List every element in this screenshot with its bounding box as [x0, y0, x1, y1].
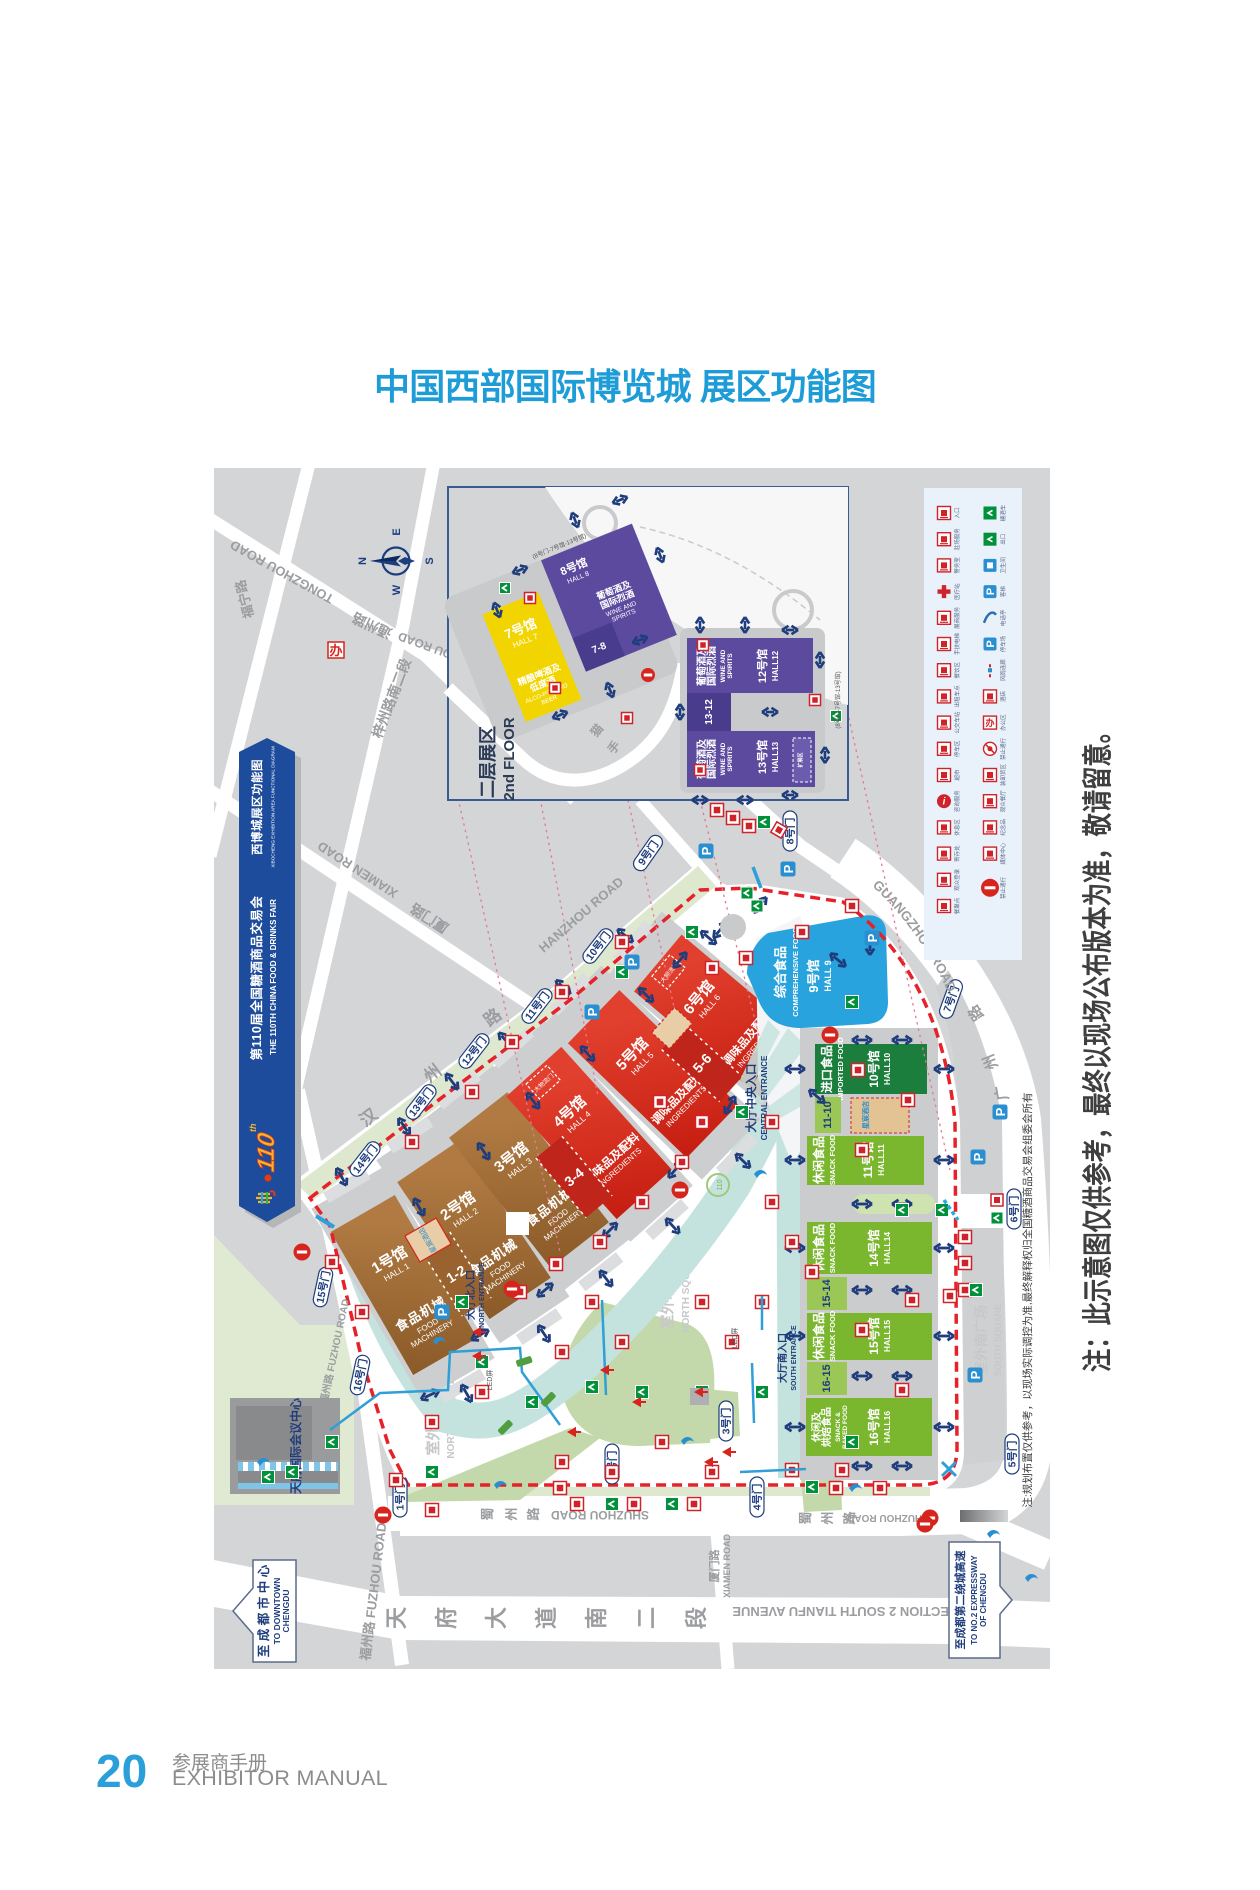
svg-text:110: 110: [717, 1179, 724, 1190]
svg-text:禁止通行: 禁止通行: [999, 737, 1007, 760]
svg-text:烘焙食品: 烘焙食品: [820, 1407, 833, 1447]
svg-text:SNACK FOOD: SNACK FOOD: [828, 1310, 837, 1361]
svg-text:15-14: 15-14: [821, 1279, 833, 1308]
svg-text:HALL 9: HALL 9: [823, 960, 833, 991]
svg-text:展商服务: 展商服务: [953, 606, 961, 629]
svg-text:SPIRITS: SPIRITS: [727, 746, 734, 772]
svg-text:餐饮区: 餐饮区: [953, 661, 961, 678]
svg-text:公交车站: 公交车站: [953, 711, 961, 734]
svg-text:HALL14: HALL14: [882, 1232, 892, 1264]
svg-text:SNACK FOOD: SNACK FOOD: [828, 1222, 837, 1273]
svg-text:州: 州: [820, 1511, 835, 1525]
svg-text:HALL10: HALL10: [882, 1053, 892, 1085]
svg-text:休闲食品: 休闲食品: [811, 1312, 826, 1361]
svg-text:(8号门-7号馆-13号馆): (8号门-7号馆-13号馆): [834, 671, 842, 728]
svg-text:TO NO.2 EXPRESSWAY: TO NO.2 EXPRESSWAY: [970, 1555, 979, 1645]
svg-text:1号门: 1号门: [394, 1484, 407, 1511]
svg-text:路: 路: [526, 1507, 541, 1521]
svg-text:THE 110TH CHINA FOOD & DRINKS: THE 110TH CHINA FOOD & DRINKS FAIR: [269, 899, 278, 1055]
svg-text:扩展区: 扩展区: [797, 752, 804, 767]
svg-text:OF CHENGDU: OF CHENGDU: [979, 1573, 988, 1627]
svg-text:大厅南入口: 大厅南入口: [776, 1333, 789, 1383]
svg-text:P: P: [968, 1370, 983, 1379]
svg-text:E: E: [391, 528, 403, 535]
svg-text:大厅中央入口: 大厅中央入口: [744, 1064, 758, 1133]
svg-text:风雨连廊: 风雨连廊: [999, 659, 1007, 682]
svg-text:电话亭: 电话亭: [999, 609, 1007, 626]
svg-text:休息区: 休息区: [953, 819, 961, 836]
svg-text:4号门: 4号门: [751, 1484, 764, 1511]
svg-text:P: P: [865, 933, 880, 942]
svg-text:星宸酒店: 星宸酒店: [861, 1101, 870, 1129]
svg-text:段: 段: [684, 1607, 709, 1629]
svg-text:咨询服务: 咨询服务: [953, 790, 961, 813]
svg-text:IMPORTED FOOD: IMPORTED FOOD: [836, 1037, 845, 1101]
svg-text:至成都第二绕城高速: 至成都第二绕城高速: [953, 1551, 967, 1650]
svg-text:二层展区: 二层展区: [478, 726, 498, 798]
svg-text:SECTION 2 SOUTH TIANFU AVENUE: SECTION 2 SOUTH TIANFU AVENUE: [732, 1604, 958, 1619]
svg-text:COMPREHENSIVE FOOD: COMPREHENSIVE FOOD: [791, 927, 800, 1017]
svg-text:th: th: [248, 1123, 258, 1132]
svg-text:2nd FLOOR: 2nd FLOOR: [501, 717, 518, 800]
svg-text:大: 大: [484, 1607, 509, 1629]
svg-text:SNACK &: SNACK &: [835, 1412, 842, 1442]
svg-text:注:规划布置仅供参考，以现场实际调控为准,最终解释权归全国糖: 注:规划布置仅供参考，以现场实际调控为准,最终解释权归全国糖酒商品交易会组委会所…: [1021, 1092, 1034, 1507]
svg-text:广: 广: [992, 1084, 1012, 1102]
svg-text:入口: 入口: [954, 507, 961, 518]
svg-text:客梯: 客梯: [999, 586, 1007, 598]
svg-text:糖酒车: 糖酒车: [999, 504, 1007, 521]
svg-text:CHENGDU: CHENGDU: [281, 1590, 291, 1633]
svg-text:P: P: [985, 640, 997, 647]
svg-text:观众餐厅: 观众餐厅: [999, 790, 1007, 813]
svg-text:N: N: [357, 557, 369, 565]
svg-text:11-10: 11-10: [822, 1101, 834, 1129]
svg-text:3号门: 3号门: [720, 1408, 733, 1435]
svg-text:寄存处: 寄存处: [953, 845, 961, 862]
svg-text:驻场服务: 驻场服务: [953, 528, 961, 551]
svg-text:14号馆: 14号馆: [866, 1229, 881, 1266]
svg-text:SNACK FOOD: SNACK FOOD: [828, 1134, 837, 1185]
svg-text:LED屏: LED屏: [731, 1328, 739, 1349]
svg-text:蜀: 蜀: [480, 1507, 495, 1520]
svg-text:出口: 出口: [999, 534, 1007, 545]
svg-text:办公区: 办公区: [999, 714, 1007, 731]
svg-text:出租车点: 出租车点: [953, 685, 961, 708]
svg-text:州: 州: [504, 1507, 519, 1521]
svg-text:纪念品: 纪念品: [999, 819, 1007, 836]
svg-text:W: W: [391, 584, 403, 595]
svg-text:P: P: [585, 1007, 600, 1016]
svg-text:南: 南: [584, 1607, 609, 1629]
svg-text:NORTH ENTRANCE: NORTH ENTRANCE: [479, 1262, 486, 1328]
svg-text:超市: 超市: [953, 769, 961, 781]
svg-text:道: 道: [534, 1607, 559, 1629]
svg-text:16-15: 16-15: [821, 1364, 833, 1392]
svg-text:S: S: [424, 557, 436, 564]
svg-text:厦门路: 厦门路: [707, 1549, 721, 1583]
svg-text:5号门: 5号门: [1006, 1441, 1019, 1468]
svg-text:第110届全国糖酒商品交易会: 第110届全国糖酒商品交易会: [249, 896, 264, 1061]
svg-text:至 成 都 市 中 心: 至 成 都 市 中 心: [256, 1564, 271, 1657]
svg-text:SOUTH SQUARE: SOUTH SQUARE: [993, 1304, 1003, 1377]
svg-text:进口食品: 进口食品: [819, 1045, 834, 1093]
svg-text:110: 110: [253, 1130, 280, 1174]
svg-text:天府国际会议中心: 天府国际会议中心: [288, 1398, 303, 1494]
svg-text:停车区: 停车区: [953, 740, 961, 757]
svg-text:13-12: 13-12: [704, 699, 715, 725]
svg-text:医疗站: 医疗站: [953, 583, 961, 600]
svg-text:9号馆: 9号馆: [806, 959, 821, 992]
svg-text:SHUZHOU ROAD: SHUZHOU ROAD: [847, 1512, 929, 1523]
svg-text:P: P: [699, 846, 714, 855]
svg-text:休闲食品: 休闲食品: [811, 1136, 826, 1185]
svg-text:P: P: [985, 588, 997, 595]
svg-text:P: P: [993, 1107, 1008, 1116]
svg-text:国际烈酒: 国际烈酒: [705, 739, 718, 779]
svg-text:HALL13: HALL13: [771, 741, 780, 772]
svg-text:手扶电梯: 手扶电梯: [953, 633, 961, 656]
svg-text:WINE AND: WINE AND: [720, 742, 727, 775]
svg-text:XIAMEN ROAD: XIAMEN ROAD: [722, 1534, 732, 1599]
svg-text:XIBOCHENG EXHIBITION AREA FUNC: XIBOCHENG EXHIBITION AREA FUNCTIONAL DIA…: [271, 746, 276, 868]
svg-text:卫生间: 卫生间: [999, 557, 1007, 574]
svg-text:10号馆: 10号馆: [866, 1050, 881, 1087]
svg-text:观众登录: 观众登录: [953, 868, 961, 891]
svg-text:HALL16: HALL16: [882, 1411, 892, 1443]
svg-text:警务室: 警务室: [953, 557, 961, 574]
svg-text:P: P: [625, 957, 640, 966]
svg-text:餐聚点: 餐聚点: [953, 897, 961, 914]
svg-text:装卸货区: 装卸货区: [999, 764, 1007, 787]
svg-text:国际烈酒: 国际烈酒: [705, 646, 718, 686]
svg-text:蜀: 蜀: [798, 1511, 813, 1524]
svg-text:办: 办: [985, 717, 994, 728]
svg-text:天: 天: [384, 1606, 409, 1629]
svg-text:HALL15: HALL15: [882, 1320, 892, 1352]
svg-text:停车场: 停车场: [999, 635, 1007, 652]
svg-text:SPIRITS: SPIRITS: [727, 653, 734, 679]
svg-text:HALL11: HALL11: [876, 1144, 886, 1176]
svg-text:综合食品: 综合食品: [773, 946, 788, 998]
svg-text:6号门: 6号门: [1008, 1196, 1021, 1223]
svg-text:LED屏: LED屏: [486, 1370, 494, 1391]
svg-text:16号馆: 16号馆: [866, 1408, 881, 1445]
svg-text:P: P: [435, 1307, 450, 1316]
svg-text:注：此示意图仅供参考，最终以现场公布版本为准，敬请留意。: 注：此示意图仅供参考，最终以现场公布版本为准，敬请留意。: [1081, 720, 1115, 1372]
svg-text:13号馆: 13号馆: [755, 740, 769, 774]
svg-text:禁止通行: 禁止通行: [999, 876, 1007, 899]
svg-text:P: P: [781, 864, 796, 873]
svg-text:媒体中心: 媒体中心: [999, 842, 1007, 865]
svg-text:i: i: [943, 797, 946, 808]
svg-text:P: P: [971, 1152, 986, 1161]
svg-text:酒店: 酒店: [999, 690, 1007, 702]
svg-text:府: 府: [434, 1607, 459, 1629]
svg-text:二: 二: [634, 1607, 659, 1629]
svg-text:西博城展区功能图: 西博城展区功能图: [250, 759, 264, 855]
svg-text:办: 办: [329, 643, 342, 658]
svg-text:WINE AND: WINE AND: [720, 649, 727, 682]
svg-text:12号馆: 12号馆: [755, 649, 769, 683]
svg-text:HALL12: HALL12: [771, 650, 780, 681]
svg-text:室外南广场: 室外南广场: [973, 1305, 989, 1375]
